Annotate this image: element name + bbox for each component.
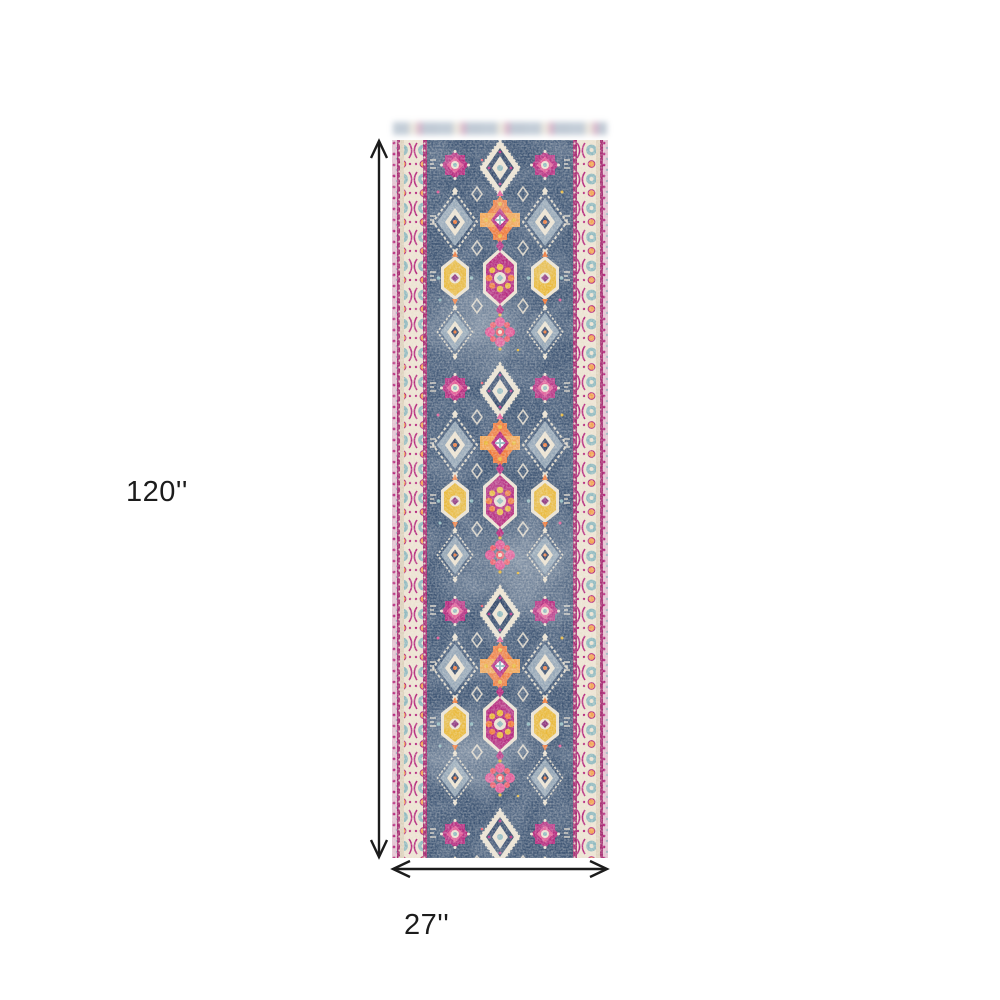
height-dimension-label: 120'' [126,478,188,507]
rug-image [392,140,608,858]
rug-top-blur-edge [393,122,607,135]
height-arrow [371,141,387,857]
rug-artwork [392,140,608,858]
width-dimension-label: 27'' [404,911,449,940]
width-arrow [393,861,607,877]
product-dimension-diagram: 120'' 27'' [0,0,1000,1000]
